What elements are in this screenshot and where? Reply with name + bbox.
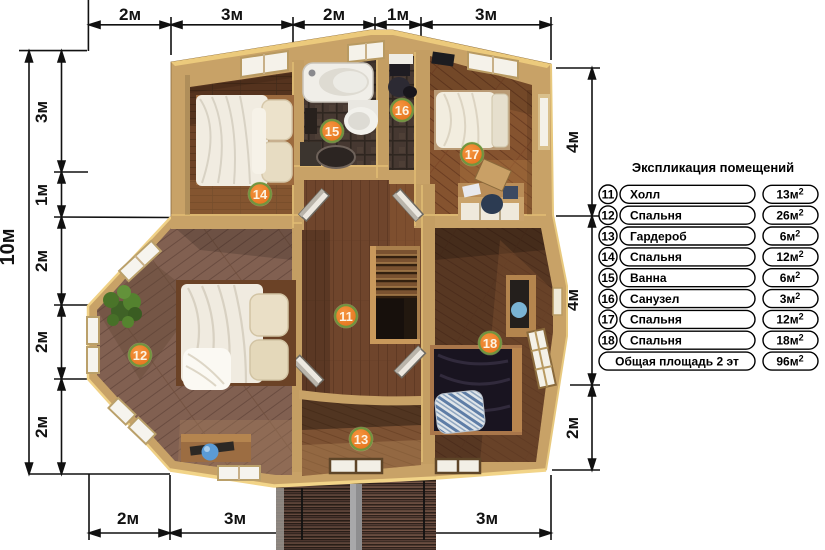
svg-text:3м: 3м bbox=[224, 509, 246, 528]
svg-text:10м: 10м bbox=[0, 228, 19, 265]
svg-text:Санузел: Санузел bbox=[630, 292, 679, 306]
svg-text:16: 16 bbox=[395, 103, 409, 118]
svg-text:13: 13 bbox=[354, 432, 368, 447]
svg-text:18: 18 bbox=[601, 334, 615, 348]
svg-text:2м: 2м bbox=[563, 417, 582, 439]
svg-text:2м: 2м bbox=[32, 416, 51, 438]
svg-text:17: 17 bbox=[465, 147, 479, 162]
svg-text:2м: 2м bbox=[32, 250, 51, 272]
svg-text:Холл: Холл bbox=[630, 188, 660, 202]
svg-text:18: 18 bbox=[483, 336, 497, 351]
svg-text:15: 15 bbox=[325, 124, 339, 139]
svg-text:12: 12 bbox=[601, 209, 615, 223]
svg-text:3м: 3м bbox=[32, 101, 51, 123]
svg-text:Спальня: Спальня bbox=[630, 209, 682, 223]
svg-text:Спальня: Спальня bbox=[630, 313, 682, 327]
svg-text:2м: 2м bbox=[119, 5, 141, 24]
svg-text:Спальня: Спальня bbox=[630, 250, 682, 264]
svg-text:Общая площадь 2 эт: Общая площадь 2 эт bbox=[615, 354, 739, 368]
svg-text:14: 14 bbox=[253, 187, 268, 202]
svg-text:Ванна: Ванна bbox=[630, 271, 667, 285]
svg-text:16: 16 bbox=[601, 292, 615, 306]
svg-text:13: 13 bbox=[601, 229, 615, 243]
svg-text:Экспликация помещений: Экспликация помещений bbox=[632, 160, 794, 175]
svg-text:3м: 3м bbox=[221, 5, 243, 24]
svg-text:2м: 2м bbox=[323, 5, 345, 24]
svg-text:14: 14 bbox=[601, 250, 615, 264]
svg-text:2м: 2м bbox=[117, 509, 139, 528]
svg-text:15: 15 bbox=[601, 271, 615, 285]
svg-text:Спальня: Спальня bbox=[630, 334, 682, 348]
svg-text:12: 12 bbox=[133, 348, 147, 363]
svg-text:3м: 3м bbox=[476, 509, 498, 528]
svg-text:Гардероб: Гардероб bbox=[630, 229, 687, 243]
svg-text:3м: 3м bbox=[475, 5, 497, 24]
svg-text:1м: 1м bbox=[32, 184, 51, 206]
svg-text:11: 11 bbox=[602, 188, 615, 202]
svg-text:4м: 4м bbox=[563, 131, 582, 153]
svg-text:17: 17 bbox=[601, 313, 615, 327]
svg-text:1м: 1м bbox=[387, 5, 409, 24]
svg-text:2м: 2м bbox=[32, 331, 51, 353]
svg-text:11: 11 bbox=[339, 309, 353, 324]
